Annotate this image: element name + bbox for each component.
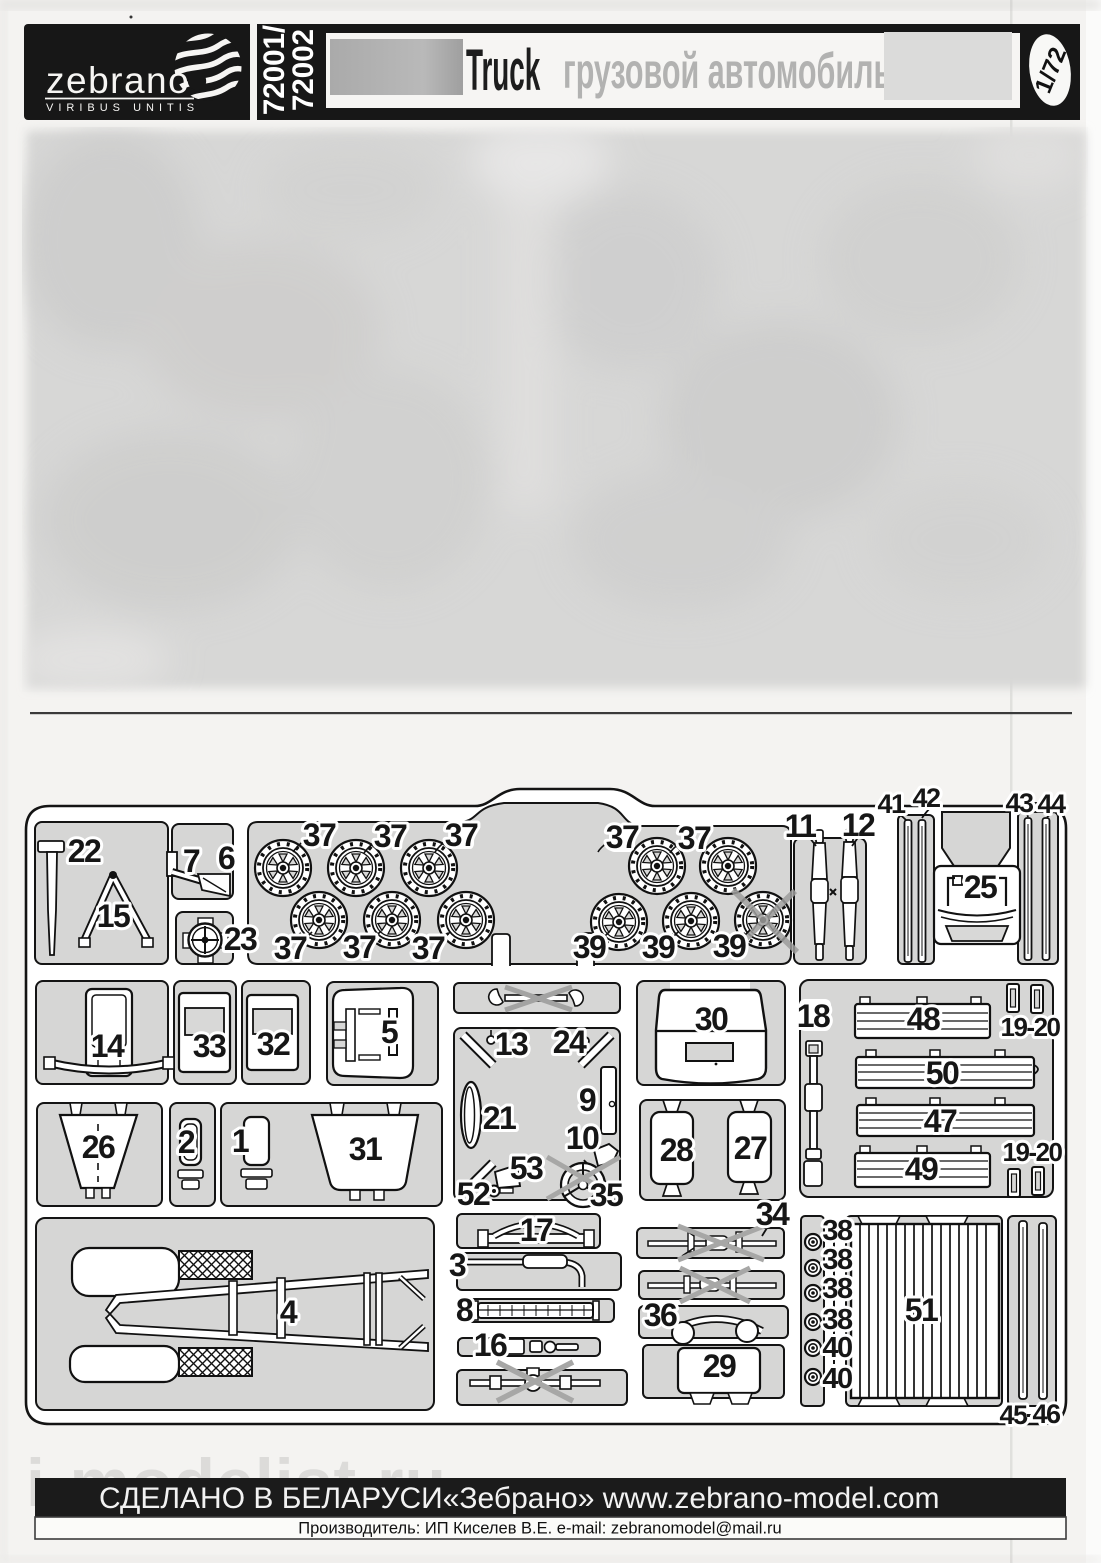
svg-text:37: 37 xyxy=(343,929,376,965)
svg-text:40: 40 xyxy=(822,1332,852,1364)
svg-text:24: 24 xyxy=(553,1024,587,1060)
svg-text:9: 9 xyxy=(579,1082,596,1118)
svg-text:39: 39 xyxy=(713,928,746,964)
svg-text:26: 26 xyxy=(82,1129,115,1165)
svg-text:46: 46 xyxy=(1032,1399,1061,1429)
svg-text:СДЕЛАНО В БЕЛАРУСИ«Зебрано» ww: СДЕЛАНО В БЕЛАРУСИ«Зебрано» www.zebrano-… xyxy=(99,1482,940,1515)
svg-text:16: 16 xyxy=(474,1327,507,1363)
svg-text:41: 41 xyxy=(877,789,906,819)
svg-text:6: 6 xyxy=(218,840,235,876)
svg-text:12: 12 xyxy=(842,807,875,843)
svg-text:37: 37 xyxy=(412,930,445,966)
svg-text:40: 40 xyxy=(822,1363,852,1395)
svg-text:17: 17 xyxy=(520,1212,553,1248)
svg-text:32: 32 xyxy=(257,1026,290,1062)
svg-text:37: 37 xyxy=(445,817,478,853)
svg-text:51: 51 xyxy=(905,1292,938,1328)
svg-text:35: 35 xyxy=(590,1177,623,1213)
svg-text:45: 45 xyxy=(999,1400,1028,1430)
svg-text:27: 27 xyxy=(734,1130,767,1166)
svg-text:37: 37 xyxy=(274,930,307,966)
svg-text:28: 28 xyxy=(660,1132,693,1168)
svg-text:47: 47 xyxy=(924,1103,957,1139)
svg-text:42: 42 xyxy=(912,783,940,813)
svg-text:15: 15 xyxy=(97,898,130,934)
svg-text:30: 30 xyxy=(695,1001,728,1037)
svg-text:33: 33 xyxy=(193,1028,226,1064)
svg-text:10: 10 xyxy=(566,1120,599,1156)
svg-text:39: 39 xyxy=(573,929,606,965)
svg-text:52: 52 xyxy=(457,1176,490,1212)
svg-text:14: 14 xyxy=(91,1028,125,1064)
svg-text:37: 37 xyxy=(678,820,711,856)
svg-text:29: 29 xyxy=(703,1348,736,1384)
svg-text:11: 11 xyxy=(785,808,817,844)
svg-text:53: 53 xyxy=(510,1150,543,1186)
svg-text:38: 38 xyxy=(822,1244,853,1276)
svg-text:37: 37 xyxy=(303,817,336,853)
svg-text:1: 1 xyxy=(232,1123,249,1159)
svg-text:13: 13 xyxy=(495,1026,528,1062)
svg-text:50: 50 xyxy=(926,1055,959,1091)
svg-text:19-20: 19-20 xyxy=(1001,1012,1061,1042)
svg-text:34: 34 xyxy=(756,1196,790,1232)
svg-text:72002: 72002 xyxy=(287,29,320,111)
svg-text:18: 18 xyxy=(797,998,830,1034)
svg-text:44: 44 xyxy=(1037,789,1066,819)
svg-text:21: 21 xyxy=(483,1100,516,1136)
svg-text:39: 39 xyxy=(642,929,675,965)
svg-text:23: 23 xyxy=(224,921,257,957)
svg-text:8: 8 xyxy=(456,1292,473,1328)
svg-text:Производитель: ИП Киселев В.Е.: Производитель: ИП Киселев В.Е. e-mail: z… xyxy=(298,1520,781,1538)
svg-text:7: 7 xyxy=(183,843,200,879)
svg-text:3: 3 xyxy=(449,1247,466,1283)
svg-text:5: 5 xyxy=(381,1014,398,1050)
svg-text:48: 48 xyxy=(907,1001,940,1037)
svg-text:38: 38 xyxy=(822,1273,853,1305)
svg-text:25: 25 xyxy=(964,869,997,905)
svg-text:VIRIBUS UNITIS: VIRIBUS UNITIS xyxy=(46,102,199,114)
svg-text:19-20: 19-20 xyxy=(1003,1137,1063,1167)
svg-text:36: 36 xyxy=(644,1297,677,1333)
svg-text:4: 4 xyxy=(280,1294,298,1330)
svg-text:22: 22 xyxy=(68,833,101,869)
svg-text:38: 38 xyxy=(822,1215,853,1247)
svg-text:zebrano: zebrano xyxy=(46,60,190,101)
svg-text:37: 37 xyxy=(374,818,407,854)
svg-text:грузовой автомобиль: грузовой автомобиль xyxy=(563,43,892,99)
svg-text:43: 43 xyxy=(1005,788,1034,818)
svg-text:49: 49 xyxy=(905,1151,938,1187)
svg-text:Truck: Truck xyxy=(466,38,541,103)
svg-text:2: 2 xyxy=(178,1124,195,1160)
svg-text:31: 31 xyxy=(349,1131,382,1167)
svg-text:37: 37 xyxy=(606,819,639,855)
